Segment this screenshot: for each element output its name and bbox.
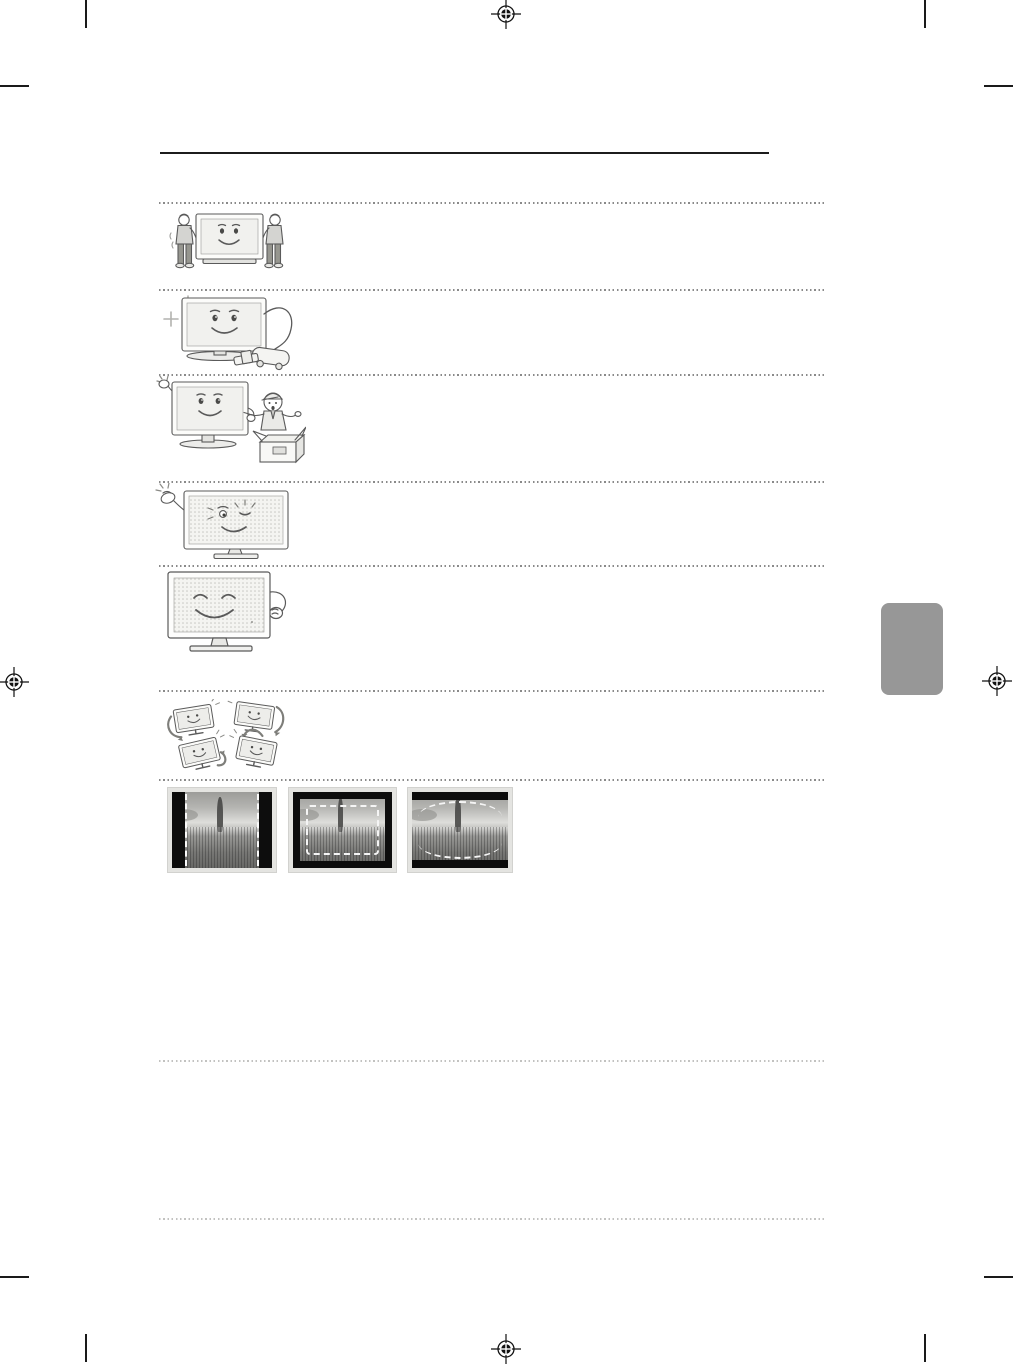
crop-mark — [984, 85, 1013, 87]
crop-mark — [0, 85, 29, 87]
section-title-rule — [160, 152, 769, 154]
manual-page: { "page": { "kind": "tv-user-manual-safe… — [0, 0, 1013, 1365]
crop-mark — [85, 0, 87, 28]
chapter-tab — [881, 603, 943, 695]
photo-windowbox-example — [288, 787, 397, 873]
black-bottom-bar — [412, 860, 508, 868]
crop-mark — [924, 1334, 926, 1362]
photo-letterbox-example — [407, 787, 513, 873]
black-top-bar — [412, 792, 508, 800]
dashed-guide-right — [257, 794, 259, 866]
dashed-guide-curves — [418, 801, 502, 859]
crop-mark — [85, 1334, 87, 1362]
crop-mark — [924, 0, 926, 28]
dotted-separator — [159, 202, 824, 204]
registration-mark-bottom — [491, 1334, 521, 1364]
registration-mark-left — [0, 667, 29, 697]
illustration-tv-waving-with-serviceman-and-box — [156, 376, 306, 468]
dotted-separator — [159, 779, 824, 781]
dashed-guide-left — [185, 794, 187, 866]
registration-mark-top — [491, 0, 521, 29]
dotted-separator — [159, 289, 824, 291]
black-side-bar-left — [172, 792, 185, 868]
crop-mark — [0, 1276, 29, 1278]
illustration-resting-tv-with-arm — [166, 570, 291, 658]
illustration-winking-tv-with-snapping-hand — [154, 483, 304, 563]
dashed-guide-rect — [306, 805, 379, 855]
photo-pillarbox-example — [167, 787, 277, 873]
illustration-four-tilted-tvs-with-rotation-arrows — [167, 699, 292, 771]
dotted-separator — [159, 565, 824, 567]
dotted-separator — [159, 690, 824, 692]
illustration-tv-with-vacuum-cleaner — [158, 292, 303, 374]
black-side-bar-right — [259, 792, 272, 868]
crop-mark — [984, 1276, 1013, 1278]
registration-mark-right — [982, 666, 1012, 696]
dotted-separator — [159, 1060, 824, 1062]
illustration-two-people-carrying-tv — [167, 207, 292, 282]
dotted-separator — [159, 1218, 824, 1220]
